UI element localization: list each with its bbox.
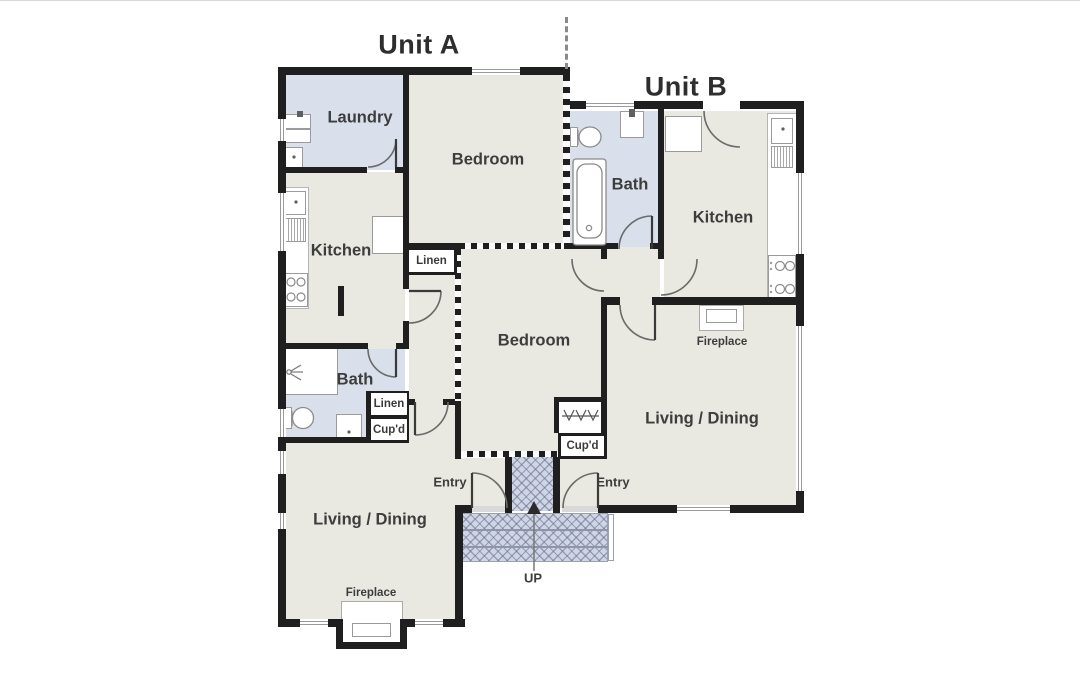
window-living-a-south-1 — [300, 619, 328, 627]
closet-cupd-b-label: Cup'd — [566, 440, 598, 452]
fireplace-b-firebox — [706, 309, 737, 323]
wall-a-north — [278, 67, 570, 75]
room-label-living-a: Living / Dining — [313, 511, 427, 530]
room-label-bath-a: Bath — [337, 371, 374, 390]
wall-checkered-divider — [563, 75, 570, 245]
closet-linen-hall-label: Linen — [416, 255, 447, 267]
wall-hall-a-west-lower — [403, 321, 409, 343]
wall-cupboard-b-west — [554, 397, 559, 433]
kitchen-a-drainer-icon — [285, 218, 306, 242]
wall-porch-east — [553, 455, 560, 513]
room-label-laundry: Laundry — [327, 109, 392, 128]
washer-icon — [285, 114, 311, 129]
feature-label-entry-b: Entry — [596, 475, 629, 490]
window-bath-b-north — [586, 101, 634, 109]
wall-checkered-bedroom-a-south — [459, 243, 564, 249]
kitchen-b-drainer-icon — [771, 146, 793, 168]
kitchen-a-sink-icon — [285, 191, 306, 215]
closet-linen-hall: Linen — [406, 247, 457, 275]
window-living-a-west-1 — [278, 451, 286, 474]
fireplace-a-hearth — [341, 601, 403, 621]
window-kitchen-a-west — [278, 193, 286, 251]
entry-b-threshold — [562, 506, 598, 512]
feature-label-fireplace-b: Fireplace — [697, 336, 748, 348]
room-label-bath-b: Bath — [612, 176, 649, 195]
closet-linen-bath: Linen — [366, 391, 409, 417]
window-bedroom-a-north — [472, 67, 520, 75]
kitchen-b-fridge-icon — [665, 116, 702, 152]
room-floor-living-b — [605, 303, 797, 508]
kitchen-a-stove-icon — [283, 273, 308, 307]
closet-cupd-b: Cup'd — [558, 433, 607, 459]
wall-laundry-south — [278, 167, 367, 173]
room-label-living-b: Living / Dining — [645, 410, 759, 429]
hallway-floor-unit-a — [409, 247, 455, 441]
feature-label-fireplace-a: Fireplace — [346, 587, 397, 599]
closet-linen-bath-label: Linen — [374, 398, 405, 410]
wall-living-b-north — [652, 297, 803, 305]
window-bath-a-west — [278, 409, 286, 437]
wall-bath-a-north-stub — [396, 343, 409, 349]
window-living-a-west-2 — [278, 513, 286, 529]
basin-b-icon — [620, 111, 644, 138]
step-edge — [460, 529, 608, 531]
step-edge — [460, 546, 608, 548]
kitchen-b-sink-icon — [771, 118, 793, 144]
unit-b-title: Unit B — [645, 72, 727, 103]
wall-checkered-bedroom-b-south — [455, 451, 558, 457]
wall-entry-b-stub — [598, 505, 612, 513]
dryer-icon — [285, 129, 311, 143]
window-living-b-south — [677, 505, 730, 513]
porch-landing — [512, 455, 553, 511]
wall-bedroom-a-west — [403, 74, 409, 249]
wall-a-east-lower — [455, 506, 463, 627]
toilet-tank-b-icon — [570, 127, 578, 147]
hallway-floor-unit-b — [567, 247, 660, 303]
shower-icon — [283, 348, 338, 395]
floor-plan: Linen Linen Cup'd Cup'd — [0, 0, 1080, 677]
kitchen-a-fridge-icon — [372, 216, 404, 254]
room-label-kitchen-b: Kitchen — [693, 209, 754, 228]
wall-bath-b-south — [564, 243, 618, 249]
entry-a-threshold — [472, 506, 505, 512]
closet-cupd-bath: Cup'd — [366, 417, 409, 442]
wall-kitchen-b-west — [658, 109, 664, 259]
laundry-tub-icon — [285, 147, 303, 168]
entry-steps — [460, 513, 608, 562]
window-living-a-south-2 — [415, 619, 443, 627]
wall-porch-west — [505, 455, 512, 513]
room-label-bedroom-b: Bedroom — [498, 332, 570, 351]
wall-bedroom-b-east-stub — [601, 249, 607, 259]
closet-cupd-bath-label: Cup'd — [373, 424, 405, 436]
step-side-rail — [608, 514, 614, 561]
cupboard-b-interior — [558, 402, 601, 433]
window-living-b-east — [796, 326, 804, 491]
wall-bath-a-north — [278, 343, 368, 349]
wall-cupboard-b-north — [556, 397, 607, 402]
fireplace-a-firebox — [352, 623, 391, 637]
wall-entry-a-stub — [455, 505, 472, 513]
unit-a-title: Unit A — [378, 30, 459, 61]
unit-divider-dashed-line — [565, 17, 568, 69]
room-label-kitchen-a: Kitchen — [311, 242, 372, 261]
wall-laundry-south-stub — [395, 167, 409, 173]
kitchen-b-stove-icon — [768, 255, 796, 301]
room-label-bedroom-a: Bedroom — [452, 151, 524, 170]
feature-label-entry-a: Entry — [433, 475, 466, 490]
window-laundry-west — [278, 119, 286, 141]
window-kitchen-b-east — [796, 173, 804, 254]
wall-kitchen-a-stub — [338, 286, 344, 316]
feature-label-up: UP — [524, 571, 542, 586]
